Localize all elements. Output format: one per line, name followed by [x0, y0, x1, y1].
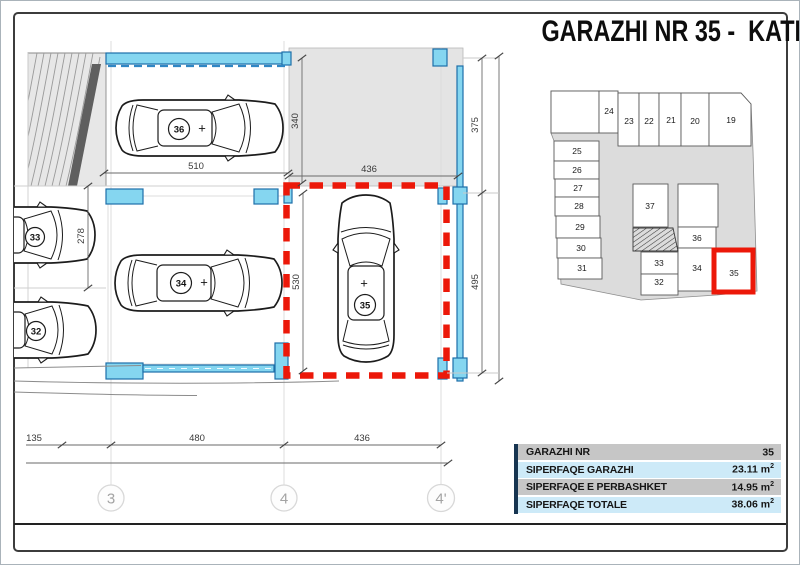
svg-text:26: 26: [572, 165, 582, 175]
svg-text:29: 29: [575, 222, 585, 232]
svg-text:31: 31: [577, 263, 587, 273]
svg-text:19: 19: [726, 115, 736, 125]
grid-bubble-4p: 4': [435, 491, 446, 508]
dim-510: 510: [188, 161, 204, 172]
table-row: SIPERFAQE GARAZHI 23.11 m2: [518, 462, 781, 478]
ramp-area: [10, 53, 106, 186]
svg-text:25: 25: [572, 146, 582, 156]
svg-text:24: 24: [604, 106, 614, 116]
car-34: [115, 250, 282, 316]
row-value: 38.06 m2: [732, 498, 774, 511]
car-label-34: 34: [176, 279, 187, 290]
svg-text:36: 36: [692, 233, 702, 243]
svg-text:21: 21: [666, 115, 676, 125]
car-32: [1, 297, 96, 363]
svg-text:34: 34: [692, 263, 702, 273]
car-label-35: 35: [360, 301, 371, 312]
svg-text:20: 20: [690, 116, 700, 126]
grid-bubble-4: 4: [280, 491, 288, 508]
dim-530: 530: [291, 274, 302, 290]
drawing-sheet: 510 340 436 375 530 495 278 135 480 436 …: [0, 0, 800, 565]
area-table: GARAZHI NR 35 SIPERFAQE GARAZHI 23.11 m2…: [514, 444, 781, 514]
row-label: SIPERFAQE E PERBASHKET: [526, 481, 732, 493]
plus-36: +: [198, 121, 206, 136]
svg-text:35: 35: [729, 268, 739, 278]
dim-340: 340: [290, 113, 301, 129]
svg-text:37: 37: [645, 201, 655, 211]
dim-375: 375: [470, 117, 481, 133]
dim-495: 495: [470, 274, 481, 290]
svg-text:22: 22: [644, 116, 654, 126]
grid-bubble-3: 3: [107, 491, 115, 508]
plus-34: +: [200, 275, 208, 290]
row-label: GARAZHI NR: [526, 446, 762, 458]
floor-plan: 510 340 436 375 530 495 278 135 480 436 …: [1, 1, 511, 521]
dim-436-bottom: 436: [354, 433, 370, 444]
titleblock-divider: [14, 523, 786, 525]
row-value: 14.95 m2: [732, 481, 774, 494]
svg-text:33: 33: [654, 258, 664, 268]
page-title: GARAZHI NR 35 - KATI -2: [501, 15, 797, 49]
row-label: SIPERFAQE TOTALE: [526, 499, 732, 511]
car-label-32: 32: [31, 327, 42, 338]
svg-text:32: 32: [654, 277, 664, 287]
grid-bubbles: 3 4 4': [98, 485, 455, 512]
table-row: GARAZHI NR 35: [518, 444, 781, 460]
row-value: 35: [762, 446, 774, 459]
car-label-36: 36: [174, 125, 185, 136]
table-row: SIPERFAQE TOTALE 38.06 m2: [518, 497, 781, 513]
row-label: SIPERFAQE GARAZHI: [526, 464, 732, 476]
dim-135: 135: [26, 433, 42, 444]
keyplan-stairs-hatch: [633, 228, 678, 251]
svg-text:30: 30: [576, 243, 586, 253]
table-row: SIPERFAQE E PERBASHKET 14.95 m2: [518, 479, 781, 495]
plus-35: +: [360, 276, 368, 291]
svg-text:27: 27: [573, 183, 583, 193]
row-value: 23.11 m2: [732, 463, 774, 476]
dim-278: 278: [76, 228, 87, 244]
dim-480: 480: [189, 433, 205, 444]
svg-text:23: 23: [624, 116, 634, 126]
key-plan: 24 23 22 21 20 19 25 26 27 28 29 30 31 3…: [545, 87, 763, 305]
car-label-33: 33: [30, 233, 41, 244]
svg-text:28: 28: [574, 201, 584, 211]
dim-436-top: 436: [361, 164, 377, 175]
